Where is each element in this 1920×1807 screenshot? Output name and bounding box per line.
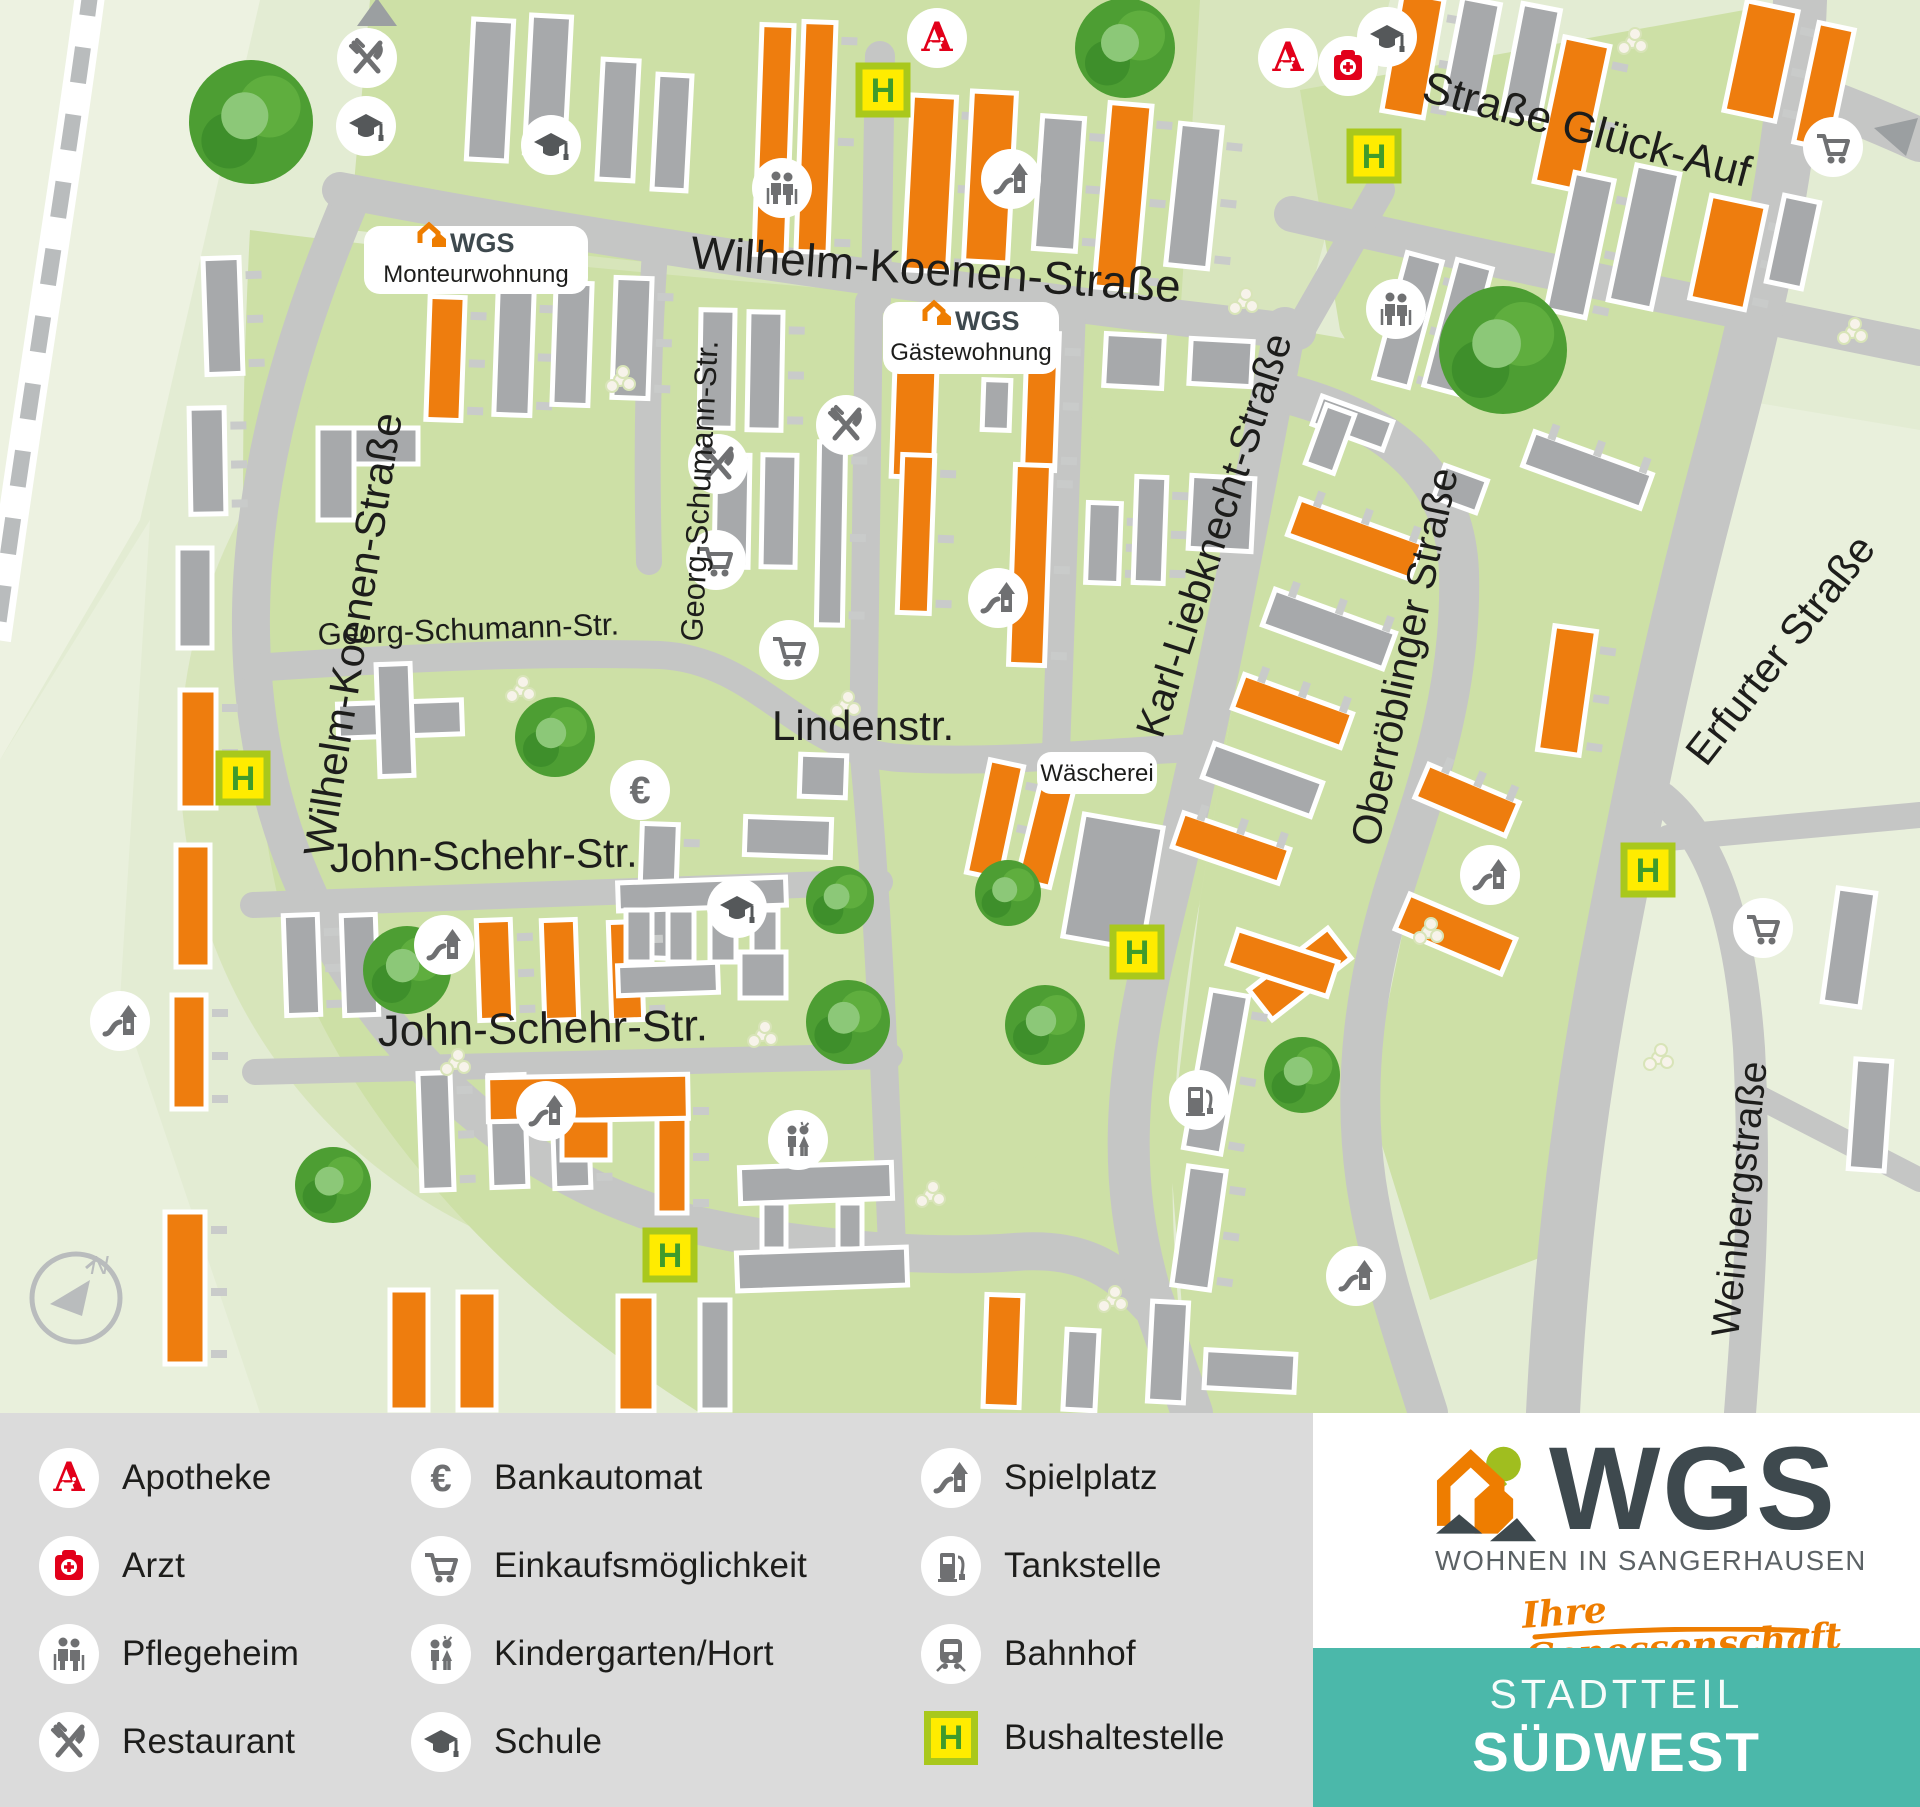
building [552, 282, 592, 405]
spielplatz-icon [1460, 845, 1520, 905]
tree-icon [189, 60, 313, 184]
building [740, 952, 786, 998]
building [668, 910, 694, 962]
building [1063, 1329, 1099, 1411]
district-line2: SÜDWEST [1472, 1720, 1761, 1784]
spielplatz-icon [516, 1081, 576, 1141]
schule-icon [1357, 7, 1417, 67]
wgs-logo: WGS [1431, 1441, 1837, 1549]
tree-icon [1075, 0, 1175, 98]
legend-label: Einkaufsmöglichkeit [494, 1546, 807, 1586]
building [466, 19, 513, 161]
svg-text:A: A [920, 14, 953, 61]
tankstelle-icon [1169, 1070, 1229, 1130]
road [863, 302, 869, 757]
label-monteurwohnung: WGS Monteurwohnung [364, 225, 588, 294]
building [376, 663, 414, 776]
svg-text:WGS: WGS [955, 306, 1020, 336]
road [255, 1056, 890, 1072]
schule-icon [410, 1711, 472, 1773]
legend-label: Bushaltestelle [1004, 1718, 1225, 1758]
tree-icon [806, 980, 890, 1064]
legend-item-bankautomat: €Bankautomat [410, 1447, 702, 1509]
building [838, 1203, 862, 1249]
building [597, 59, 639, 181]
svg-text:H: H [1636, 852, 1661, 890]
building [1204, 1350, 1296, 1393]
einkaufsmoeglichkeit-icon [759, 620, 819, 680]
building [700, 1300, 730, 1410]
street-label-john-schehr-2: John-Schehr-Str. [377, 1001, 708, 1056]
legend-item-restaurant: Restaurant [38, 1711, 295, 1773]
building [983, 1294, 1023, 1407]
legend-label: Pflegeheim [122, 1634, 299, 1674]
label-gaestewohnung: WGS Gästewohnung [883, 302, 1059, 374]
svg-text:H: H [658, 1237, 683, 1275]
tree-icon [515, 697, 595, 777]
building [982, 380, 1011, 431]
tankstelle-icon [920, 1535, 982, 1597]
legend-label: Kindergarten/Hort [494, 1634, 774, 1674]
bus-stop-marker: H [1350, 132, 1398, 180]
legend-label: Tankstelle [1004, 1546, 1162, 1586]
tree-icon [1005, 985, 1085, 1065]
building [390, 1290, 428, 1410]
tree-icon [975, 860, 1041, 926]
building [458, 1292, 496, 1410]
tree-icon [1439, 286, 1567, 414]
legend-item-arzt: Arzt [38, 1535, 185, 1597]
restaurant-icon [38, 1711, 100, 1773]
legend-item-schule: Schule [410, 1711, 602, 1773]
svg-text:€: € [629, 770, 650, 812]
wgs-house-icon [1431, 1441, 1549, 1549]
building [736, 1247, 907, 1291]
bus-stop-marker: H [859, 66, 907, 114]
building [652, 74, 692, 191]
svg-text:Gästewohnung: Gästewohnung [890, 339, 1051, 366]
svg-text:H: H [231, 760, 256, 798]
logo-subline: WOHNEN IN SANGERHAUSEN [1435, 1545, 1867, 1577]
spielplatz-icon [920, 1447, 982, 1509]
svg-text:A: A [52, 1454, 85, 1501]
svg-text:N: N [90, 1250, 109, 1280]
tree-icon [295, 1147, 371, 1223]
legend-label: Bahnhof [1004, 1634, 1136, 1674]
building [744, 817, 831, 858]
legend-label: Bankautomat [494, 1458, 702, 1498]
bahnhof-icon [920, 1623, 982, 1685]
building [1848, 1059, 1892, 1171]
building [754, 25, 794, 256]
legend-label: Restaurant [122, 1722, 295, 1762]
legend: AApothekeArztPflegeheimRestaurant€Bankau… [0, 1413, 1313, 1807]
pflegeheim-icon [1366, 279, 1426, 339]
building [283, 914, 342, 1016]
kindergarten-icon [768, 1110, 828, 1170]
legend-item-bahnhof: Bahnhof [920, 1623, 1136, 1685]
bushaltestelle-icon: H [924, 1711, 978, 1765]
building [626, 910, 652, 962]
bus-stop-marker: H [1624, 846, 1672, 894]
legend-item-tankstelle: Tankstelle [920, 1535, 1162, 1597]
schule-icon [336, 96, 396, 156]
brand-panel: WGS WOHNEN IN SANGERHAUSEN Ihre Genossen… [1313, 1413, 1920, 1648]
street-label-john-schehr-1: John-Schehr-Str. [329, 830, 637, 881]
schule-icon [707, 878, 767, 938]
bus-stop-marker: H [646, 1231, 694, 1279]
legend-label: Spielplatz [1004, 1458, 1158, 1498]
pflegeheim-icon [38, 1623, 100, 1685]
legend-label: Schule [494, 1722, 602, 1762]
logo-wordmark: WGS [1549, 1441, 1837, 1538]
tree-icon [1264, 1037, 1340, 1113]
einkaufsmoeglichkeit-icon [1733, 898, 1793, 958]
pflegeheim-icon [752, 158, 812, 218]
spielplatz-icon [414, 915, 474, 975]
district-line1: STADTTEIL [1490, 1671, 1744, 1718]
building [176, 845, 210, 967]
svg-text:H: H [1362, 138, 1387, 176]
legend-item-apotheke: AApotheke [38, 1447, 272, 1509]
bus-stop-marker: H [219, 754, 267, 802]
spielplatz-icon [968, 568, 1028, 628]
building [618, 962, 719, 995]
legend-item-einkaufsmoeglichkeit: Einkaufsmöglichkeit [410, 1535, 807, 1597]
schule-icon [521, 115, 581, 175]
building [178, 548, 212, 648]
einkaufsmoeglichkeit-icon [1803, 117, 1863, 177]
restaurant-icon [337, 28, 397, 88]
svg-text:A: A [1271, 34, 1304, 81]
svg-text:Wäscherei: Wäscherei [1040, 760, 1153, 787]
apotheke-icon: A [1258, 28, 1318, 88]
bus-stop-marker: H [1113, 928, 1161, 976]
legend-item-bushaltestelle: HBushaltestelle [920, 1711, 1225, 1765]
einkaufsmoeglichkeit-icon [410, 1535, 472, 1597]
svg-text:WGS: WGS [450, 228, 515, 258]
restaurant-icon [816, 395, 876, 455]
building [762, 1203, 786, 1249]
map-canvas: AA€HHHHHH Wilhelm-Koenen-Straße Wilhelm-… [0, 0, 1920, 1413]
bankautomat-icon: € [410, 1447, 472, 1509]
building [618, 1296, 654, 1411]
building [799, 754, 846, 798]
legend-item-spielplatz: Spielplatz [920, 1447, 1158, 1509]
building [1147, 1301, 1188, 1403]
apotheke-icon: A [38, 1447, 100, 1509]
spielplatz-icon [90, 991, 150, 1051]
bankautomat-icon: € [610, 760, 670, 820]
label-waescherei: Wäscherei [1037, 752, 1157, 794]
apotheke-icon: A [907, 8, 967, 68]
kindergarten-icon [410, 1623, 472, 1685]
legend-item-kindergarten: Kindergarten/Hort [410, 1623, 774, 1685]
legend-item-pflegeheim: Pflegeheim [38, 1623, 299, 1685]
tree-icon [806, 866, 874, 934]
legend-label: Arzt [122, 1546, 185, 1586]
building [739, 1162, 892, 1203]
building [761, 455, 797, 568]
page: AA€HHHHHH Wilhelm-Koenen-Straße Wilhelm-… [0, 0, 1920, 1807]
svg-text:€: € [430, 1458, 451, 1500]
legend-label: Apotheke [122, 1458, 272, 1498]
street-label-lindenstr: Lindenstr. [772, 702, 954, 749]
svg-text:H: H [871, 72, 896, 110]
building [1104, 334, 1165, 389]
spielplatz-icon [1326, 1246, 1386, 1306]
spielplatz-icon [981, 149, 1041, 209]
district-panel: STADTTEIL SÜDWEST [1313, 1648, 1920, 1807]
svg-text:Monteurwohnung: Monteurwohnung [383, 261, 568, 288]
logo-claim-underline [1531, 1627, 1811, 1641]
arzt-icon [38, 1535, 100, 1597]
svg-text:H: H [1125, 934, 1150, 972]
